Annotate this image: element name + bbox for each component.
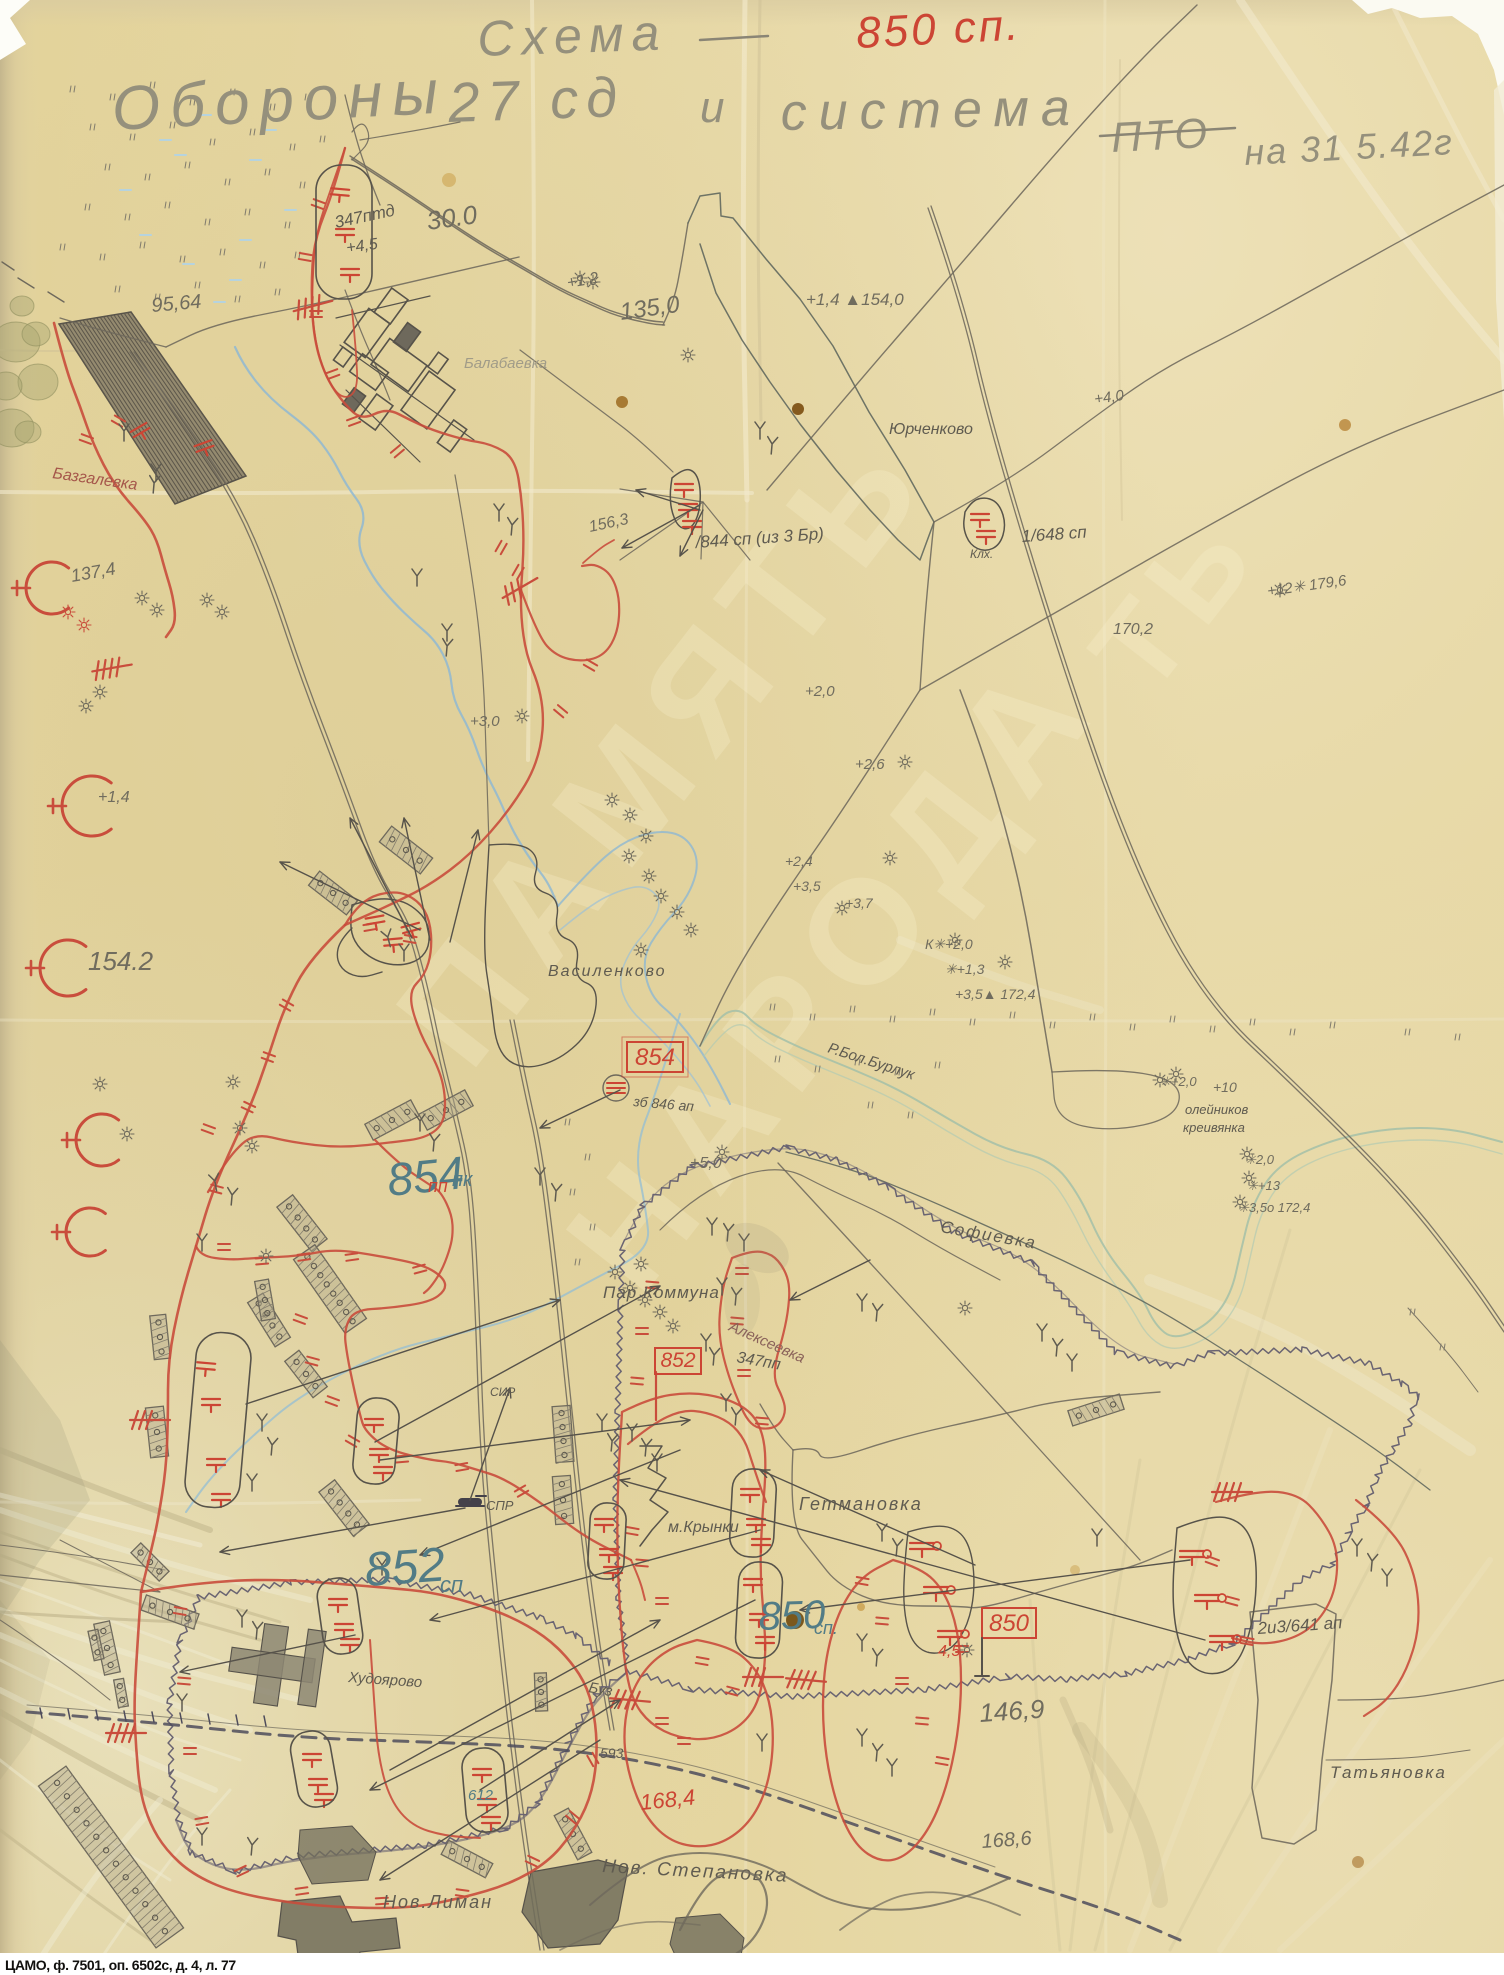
svg-text:850: 850 <box>989 1610 1030 1637</box>
svg-text:+5,0: +5,0 <box>690 1155 722 1172</box>
svg-text:Схема: Схема <box>476 4 668 67</box>
svg-text:154.2: 154.2 <box>88 946 154 976</box>
svg-text:+2,6: +2,6 <box>855 756 885 773</box>
svg-text:Нов.Лиман: Нов.Лиман <box>383 1892 493 1912</box>
svg-text:К✳+2,0: К✳+2,0 <box>925 936 973 952</box>
svg-text:+2,4: +2,4 <box>785 853 813 869</box>
svg-text:✳+2,0: ✳+2,0 <box>1160 1074 1197 1089</box>
svg-text:+1,4: +1,4 <box>98 789 130 806</box>
svg-text:+3,5▲ 172,4: +3,5▲ 172,4 <box>955 986 1036 1002</box>
svg-text:Гетмановка: Гетмановка <box>799 1494 923 1514</box>
svg-text:СПР: СПР <box>486 1498 514 1513</box>
svg-text:+2,0: +2,0 <box>805 683 835 700</box>
svg-text:593: 593 <box>600 1745 624 1761</box>
svg-text:27 сд: 27 сд <box>446 65 626 134</box>
svg-text:ЦАМО, ф. 7501, оп. 6502с, д. 4: ЦАМО, ф. 7501, оп. 6502с, д. 4, л. 77 <box>5 1957 236 1973</box>
svg-text:✳2,0: ✳2,0 <box>1245 1152 1275 1167</box>
svg-text:146,9: 146,9 <box>978 1694 1045 1728</box>
svg-text:852: 852 <box>660 1349 695 1372</box>
svg-text:креивянка: креивянка <box>1183 1120 1245 1135</box>
svg-text:168,6: 168,6 <box>981 1827 1033 1852</box>
svg-text:Татьяновка: Татьяновка <box>1330 1763 1447 1782</box>
svg-text:СИР: СИР <box>490 1385 515 1399</box>
svg-text:м.Крынки: м.Крынки <box>668 1519 739 1536</box>
svg-text:пк: пк <box>452 1169 474 1191</box>
svg-text:сп: сп <box>440 1572 463 1597</box>
svg-text:+3,7: +3,7 <box>845 895 874 911</box>
svg-text:170,2: 170,2 <box>1113 621 1153 638</box>
svg-text:сп.: сп. <box>814 1618 838 1638</box>
svg-text:Клх.: Клх. <box>970 547 993 561</box>
svg-text:854: 854 <box>635 1044 675 1071</box>
svg-text:пп: пп <box>428 1176 448 1196</box>
svg-text:+1,4 ▲154,0: +1,4 ▲154,0 <box>806 290 904 309</box>
svg-text:олейников: олейников <box>1185 1102 1248 1117</box>
svg-text:✳+13: ✳+13 <box>1247 1178 1281 1193</box>
svg-text:Балабаевка: Балабаевка <box>464 355 547 372</box>
svg-text:Василенково: Василенково <box>548 963 667 980</box>
svg-text:и: и <box>700 83 724 132</box>
svg-text:4,5: 4,5 <box>938 1643 960 1660</box>
svg-text:612: 612 <box>468 1787 494 1804</box>
svg-text:+3,5: +3,5 <box>793 878 821 894</box>
svg-text:✳3,5о 172,4: ✳3,5о 172,4 <box>1238 1200 1310 1215</box>
svg-text:850 сп.: 850 сп. <box>855 0 1022 58</box>
svg-text:Пар Коммуна: Пар Коммуна <box>603 1283 720 1302</box>
svg-text:852: 852 <box>363 1539 447 1597</box>
svg-text:+3,0: +3,0 <box>470 713 500 730</box>
svg-text:Юрченково: Юрченково <box>889 421 973 438</box>
svg-text:95,64: 95,64 <box>151 291 203 317</box>
svg-text:+10: +10 <box>1213 1079 1237 1095</box>
svg-text:система: система <box>780 79 1082 142</box>
svg-text:✳+1,3: ✳+1,3 <box>945 961 985 977</box>
